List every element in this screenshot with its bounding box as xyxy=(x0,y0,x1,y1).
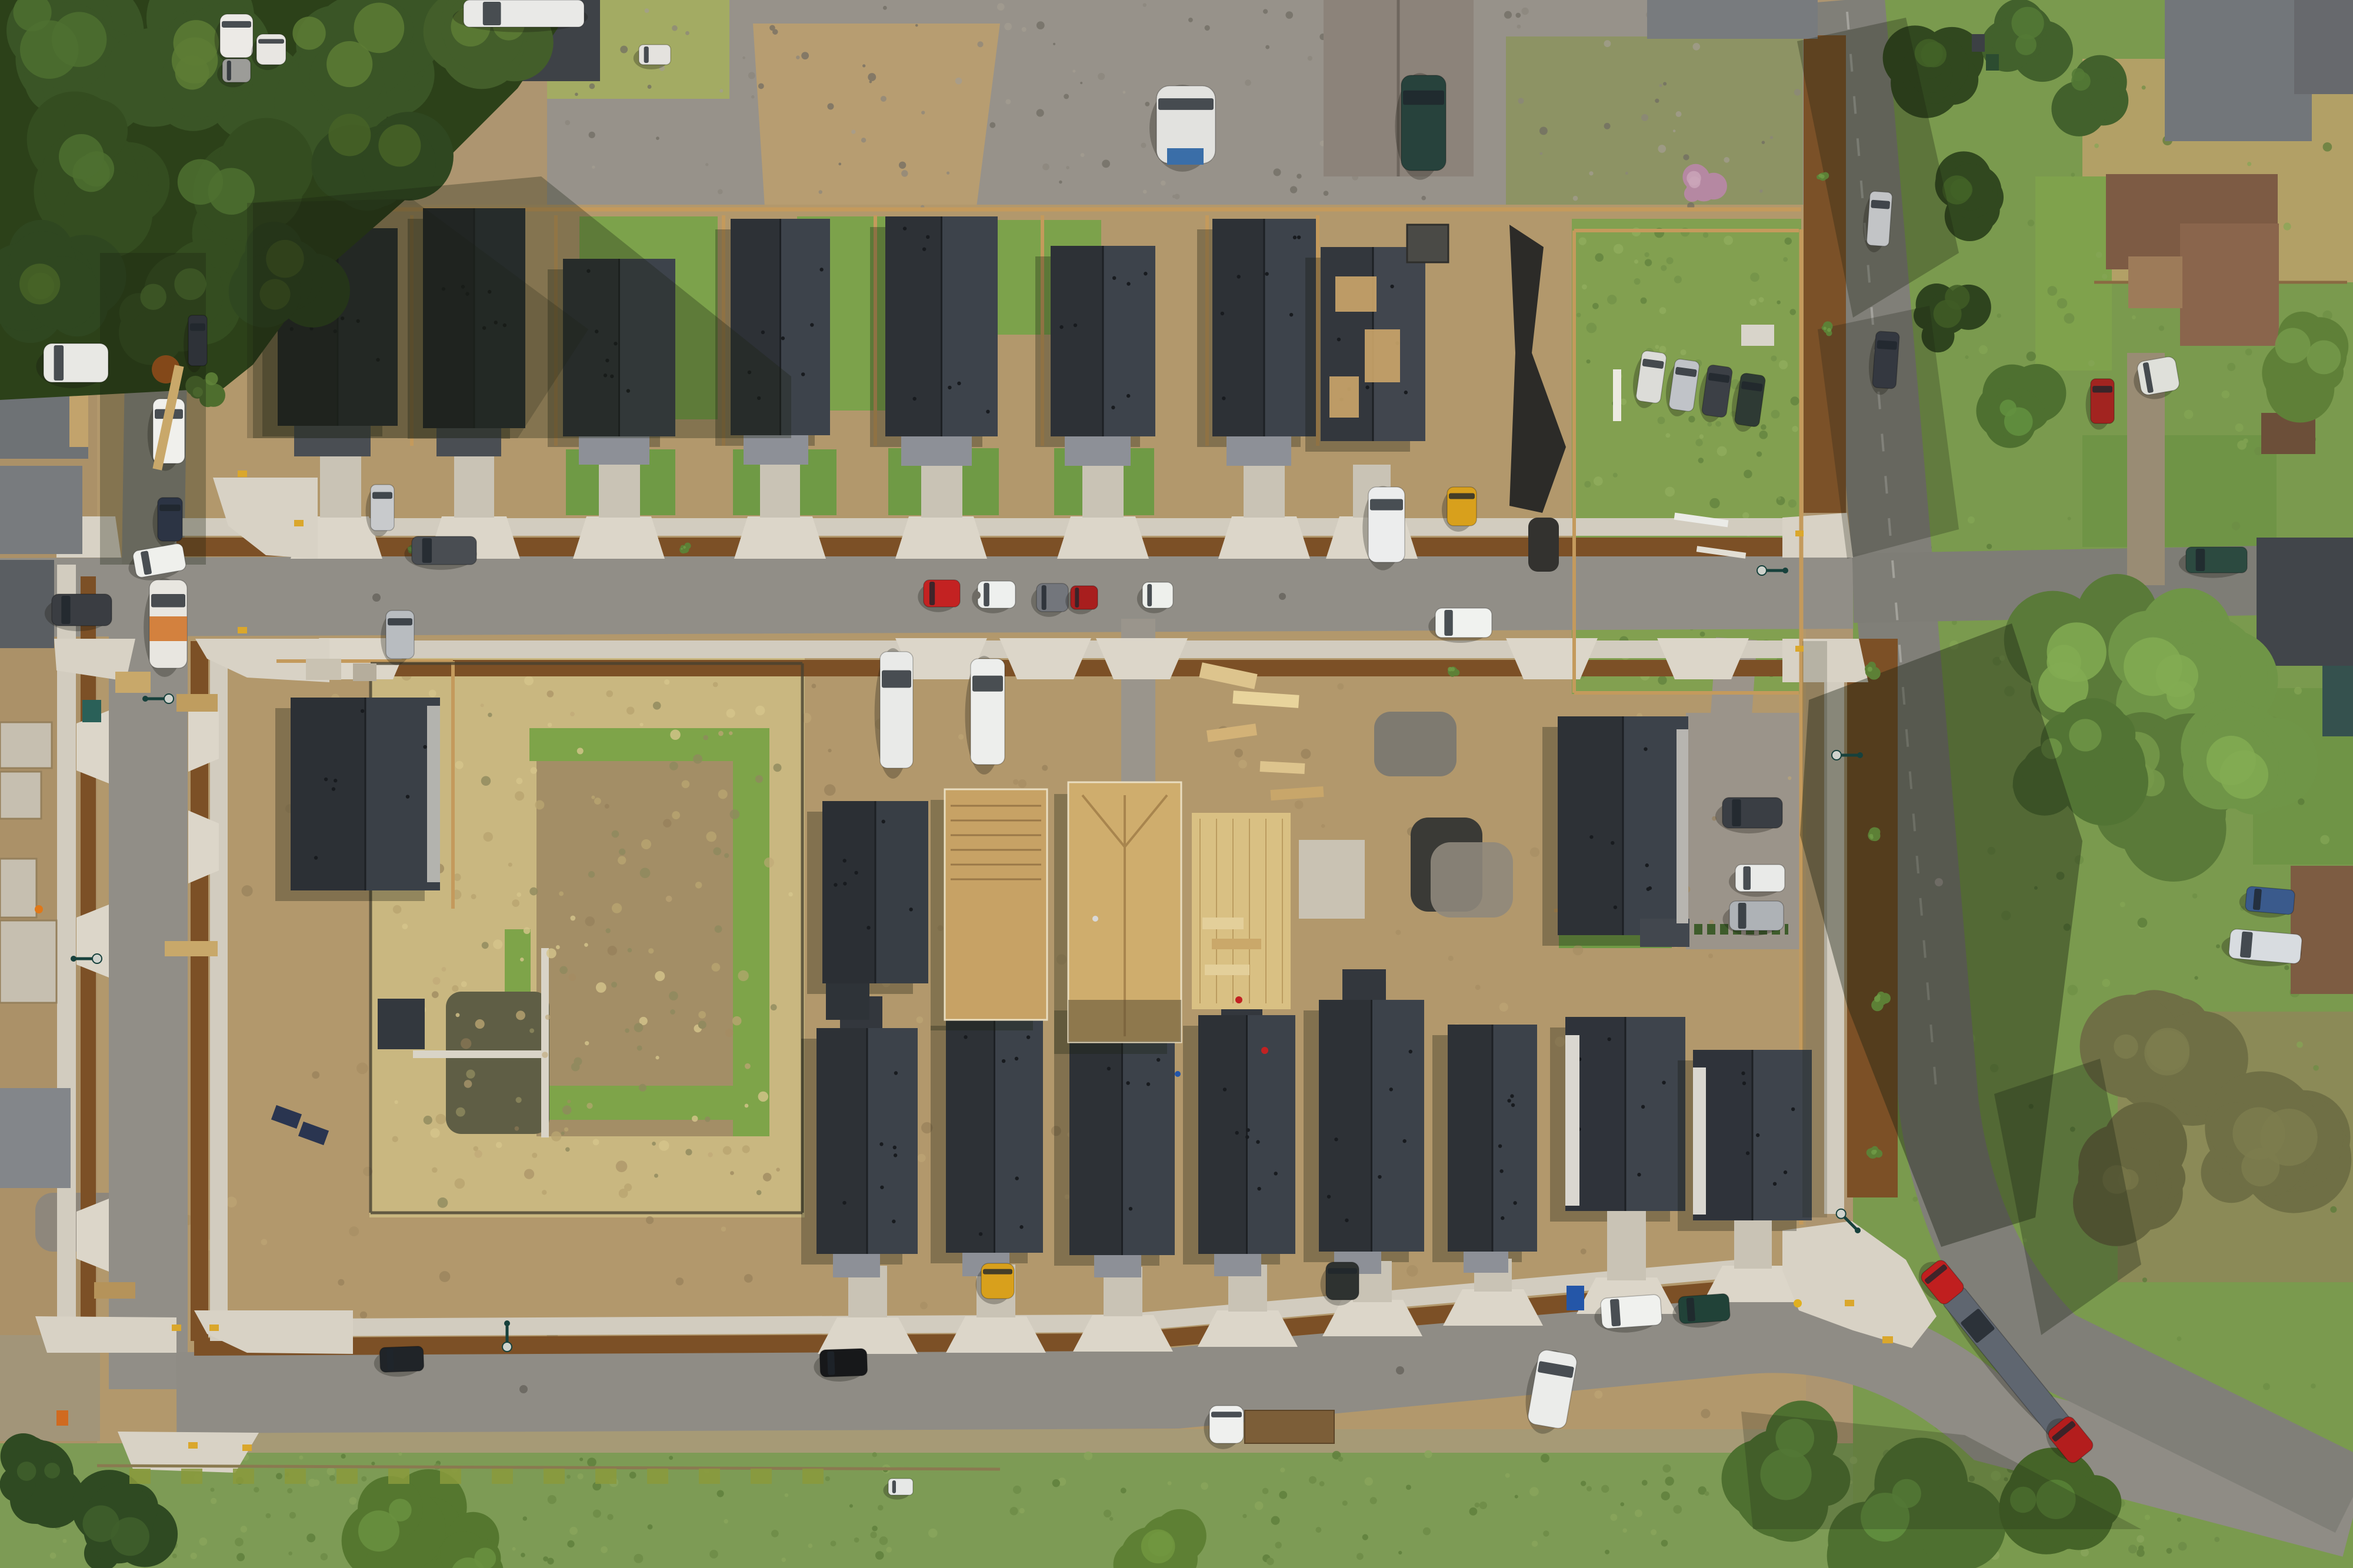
driveway xyxy=(1734,1220,1772,1269)
speckle-dot xyxy=(1271,1516,1280,1525)
speckle-dot xyxy=(1579,238,1587,245)
nb-gray-roof-house xyxy=(2165,0,2312,141)
speckle-dot xyxy=(1324,191,1329,196)
speckle-dot xyxy=(872,1452,877,1457)
speckle-dot xyxy=(2068,517,2071,521)
speckle-dot xyxy=(1987,543,1992,549)
vehicle-windshield xyxy=(1370,499,1403,510)
vehicle-windshield xyxy=(227,61,231,81)
vehicle-body xyxy=(464,0,584,27)
speckle-dot xyxy=(601,1546,608,1553)
speckle-dot xyxy=(529,888,538,896)
lamp-head xyxy=(92,954,102,963)
vehicle-windshield xyxy=(984,583,989,606)
speckle-dot xyxy=(548,723,552,727)
canopy-highlight xyxy=(2307,341,2341,375)
speckle-dot xyxy=(1605,1550,1609,1554)
canopy-highlight xyxy=(2147,1028,2189,1071)
speckle-dot xyxy=(2232,522,2241,531)
roof-west-slope xyxy=(1448,1025,1492,1252)
canopy-highlight xyxy=(2260,1109,2317,1166)
roof-bump xyxy=(1214,1254,1261,1276)
speckle-dot xyxy=(1661,1540,1668,1547)
speckle-dot xyxy=(1777,301,1781,305)
speckle-dot xyxy=(1421,196,1426,201)
speckle-dot xyxy=(718,789,728,799)
speckle-dot xyxy=(1084,1452,1092,1460)
roof-west-slope xyxy=(1319,1000,1372,1252)
speckle-dot xyxy=(1594,476,1603,486)
speckle-dot xyxy=(958,734,964,739)
lamp-pole xyxy=(71,956,76,962)
deck-lumber-stack xyxy=(1205,965,1249,975)
speckle-dot xyxy=(455,761,464,769)
nb-teal-wall xyxy=(2322,666,2353,736)
canopy-highlight xyxy=(1827,328,1831,332)
vehicle-body xyxy=(1872,331,1900,389)
vehicle-body xyxy=(222,59,251,82)
roof-vent xyxy=(1235,1131,1239,1135)
speckle-dot xyxy=(1709,920,1714,925)
vehicle-body xyxy=(1867,191,1892,246)
speckle-dot xyxy=(394,1100,398,1104)
speckle-dot xyxy=(788,892,793,897)
canopy-highlight xyxy=(683,546,686,549)
roof-bump xyxy=(1342,969,1386,1000)
speckle-dot xyxy=(516,1097,522,1103)
roof-vent xyxy=(957,382,961,385)
speckle-dot xyxy=(1749,299,1757,306)
roof-vent xyxy=(1074,323,1077,327)
speckle-dot xyxy=(430,1128,439,1137)
speckle-dot xyxy=(1965,355,1968,359)
speckle-dot xyxy=(1081,153,1085,157)
speckle-dot xyxy=(838,163,841,166)
speckle-dot xyxy=(812,683,816,688)
roof-vent xyxy=(854,871,858,875)
tactile-pad xyxy=(1795,531,1804,536)
speckle-dot xyxy=(785,1493,789,1497)
east-lot-white-car xyxy=(1729,865,1785,897)
speckle-dot xyxy=(1395,930,1401,935)
speckle-dot xyxy=(2227,363,2235,371)
vehicle-body xyxy=(1600,1295,1662,1329)
speckle-dot xyxy=(693,755,702,764)
speckle-dot xyxy=(508,863,512,867)
speckle-dot xyxy=(763,1173,772,1182)
roof-vent xyxy=(332,787,335,790)
speckle-dot xyxy=(2057,298,2068,309)
speckle-dot xyxy=(1667,257,1674,264)
speckle-dot xyxy=(639,723,643,726)
speckle-dot xyxy=(562,1105,572,1115)
tarp-pile-small xyxy=(1528,518,1559,572)
roof-vent xyxy=(1409,1050,1412,1053)
speckle-dot xyxy=(769,25,775,31)
dark-suv-street xyxy=(404,536,476,570)
vehicle-body xyxy=(1447,487,1477,526)
speckle-dot xyxy=(669,1456,673,1460)
roof-east-slope xyxy=(942,216,998,436)
vehicle-body xyxy=(1435,608,1492,638)
speckle-dot xyxy=(392,1136,398,1142)
pond-weir-horizontal xyxy=(413,1050,547,1058)
speckle-dot xyxy=(901,170,908,176)
canopy-highlight xyxy=(1824,327,1827,330)
speckle-dot xyxy=(825,1476,830,1481)
nb-dark-house xyxy=(2257,538,2353,666)
speckle-dot xyxy=(1479,1502,1487,1509)
deck-lumber-stack xyxy=(1212,939,1261,949)
speckle-dot xyxy=(172,1553,177,1558)
speckle-dot xyxy=(672,811,680,819)
roof-vent xyxy=(1662,1080,1665,1084)
roof-vent xyxy=(1742,1082,1746,1085)
speckle-dot xyxy=(2311,1383,2316,1389)
speckle-dot xyxy=(801,52,809,59)
speckle-dot xyxy=(1634,278,1641,285)
roof-vent xyxy=(843,882,846,885)
speckle-dot xyxy=(709,1550,718,1559)
speckle-dot xyxy=(1004,23,1012,31)
speckle-dot xyxy=(729,731,732,735)
speckle-dot xyxy=(1595,253,1604,262)
white-box-truck xyxy=(1362,486,1405,570)
canopy-highlight xyxy=(178,159,223,205)
speckle-dot xyxy=(524,676,534,685)
speckle-dot xyxy=(1052,1479,1060,1487)
speckle-dot xyxy=(872,1526,878,1532)
speckle-dot xyxy=(1274,168,1281,176)
speckle-dot xyxy=(883,6,887,10)
vehicle-windshield xyxy=(1449,493,1475,499)
roof-vent xyxy=(314,856,318,859)
speckle-dot xyxy=(308,1479,316,1487)
roof-vent xyxy=(1611,841,1614,845)
vehicle-body xyxy=(220,14,253,58)
speckle-dot xyxy=(456,1107,465,1117)
vehicle-body xyxy=(1036,583,1068,612)
speckle-dot xyxy=(515,791,524,800)
speckle-dot xyxy=(1700,632,1705,637)
vehicle-windshield xyxy=(483,2,501,25)
speckle-dot xyxy=(241,1526,247,1532)
west-model-home xyxy=(275,698,440,901)
roof-vent xyxy=(964,1035,967,1039)
speckle-dot xyxy=(1098,73,1105,80)
speckle-dot xyxy=(1715,421,1721,427)
silver-suv xyxy=(381,610,414,665)
speckle-dot xyxy=(516,892,521,897)
vehicle-body xyxy=(1368,487,1405,562)
speckle-dot xyxy=(532,1153,537,1158)
speckle-dot xyxy=(1701,1409,1710,1418)
pallet xyxy=(165,941,218,956)
roof-vent xyxy=(1499,1169,1503,1173)
speckle-dot xyxy=(1267,1557,1274,1565)
canopy-highlight xyxy=(52,12,107,67)
site-box-truck xyxy=(875,648,913,779)
speckle-dot xyxy=(210,1487,214,1492)
speckle-dot xyxy=(726,709,735,718)
speckle-dot xyxy=(306,1533,315,1542)
speckle-dot xyxy=(438,1197,448,1208)
speckle-dot xyxy=(745,1063,751,1069)
speckle-dot xyxy=(2294,687,2302,695)
speckle-dot xyxy=(1121,1487,1126,1493)
speckle-dot xyxy=(703,735,708,740)
speckle-dot xyxy=(570,916,575,921)
speckle-dot xyxy=(50,1553,56,1559)
speckle-dot xyxy=(520,958,524,962)
canopy-highlight xyxy=(1869,834,1874,838)
speckle-dot xyxy=(612,830,619,838)
vehicle-windshield xyxy=(1042,585,1046,610)
vehicle-windshield xyxy=(54,345,64,381)
vehicle-windshield xyxy=(159,505,181,511)
speckle-dot xyxy=(1234,749,1243,758)
canopy-highlight xyxy=(175,55,209,89)
tactile-pad xyxy=(1845,1300,1854,1306)
framed-house-A xyxy=(945,789,1047,1020)
roof-vent xyxy=(1327,1195,1331,1198)
canopy-highlight xyxy=(205,372,218,385)
vehicle-windshield xyxy=(1075,588,1079,608)
speckle-dot xyxy=(831,1540,836,1546)
canopy-highlight xyxy=(292,16,325,49)
yellow-skid-steer xyxy=(1442,487,1477,532)
roof-vent xyxy=(801,372,805,376)
drive-apron xyxy=(1218,516,1310,559)
speckle-dot xyxy=(2047,286,2057,296)
speckle-dot xyxy=(808,1543,813,1548)
speckle-dot xyxy=(585,1041,589,1045)
speckle-dot xyxy=(1013,1486,1021,1494)
plywood-patch xyxy=(1365,329,1400,382)
canopy-lobe xyxy=(2088,78,2119,110)
roof-vent xyxy=(1126,1081,1129,1085)
canopy-highlight xyxy=(1451,667,1455,671)
speckle-dot xyxy=(625,1028,629,1033)
speckle-dot xyxy=(559,892,564,896)
speckle-dot xyxy=(1072,69,1075,72)
speckle-dot xyxy=(464,1080,472,1088)
roof-vent xyxy=(880,1186,884,1189)
speckle-dot xyxy=(1604,40,1611,47)
worker-red xyxy=(1235,996,1242,1003)
speckle-dot xyxy=(666,896,672,902)
canopy-highlight xyxy=(59,134,104,179)
speckle-dot xyxy=(569,1527,578,1535)
speckle-dot xyxy=(1172,195,1176,198)
speckle-dot xyxy=(605,804,609,809)
speckle-dot xyxy=(1705,1492,1709,1496)
speckle-dot xyxy=(2096,252,2102,258)
driveway xyxy=(1607,1211,1646,1280)
speckle-dot xyxy=(1587,1486,1592,1492)
speckle-dot xyxy=(774,763,782,772)
dumpster xyxy=(1407,225,1448,262)
dark-van xyxy=(45,594,112,631)
roof-vent xyxy=(1247,1128,1250,1132)
speckle-dot xyxy=(730,809,740,819)
trash-bin xyxy=(1986,54,1999,71)
speckle-dot xyxy=(2216,945,2220,949)
speckle-dot xyxy=(1703,232,1708,238)
speckle-dot xyxy=(2145,1514,2150,1520)
roof-vent xyxy=(1015,1057,1018,1060)
vehicle-body xyxy=(639,45,671,65)
speckle-dot xyxy=(1301,749,1311,759)
trash-bin xyxy=(1972,34,1985,52)
canopy-highlight xyxy=(2275,328,2310,363)
roof-east-slope xyxy=(1492,1025,1537,1252)
speckle-dot xyxy=(529,1028,534,1033)
speckle-dot xyxy=(312,1071,319,1079)
flatbed-truck xyxy=(453,0,588,32)
speckle-dot xyxy=(424,1116,432,1125)
vehicle-windshield xyxy=(1738,903,1747,929)
speckle-dot xyxy=(620,46,628,54)
roof-vent xyxy=(1265,272,1268,276)
roof-east-slope xyxy=(1103,246,1155,436)
speckle-dot xyxy=(851,130,855,134)
vehicle-body xyxy=(1678,1293,1731,1324)
speckle-dot xyxy=(1109,1517,1114,1521)
speckle-dot xyxy=(1724,157,1729,163)
speckle-dot xyxy=(612,903,622,913)
speckle-dot xyxy=(1018,779,1026,788)
pvc-pipe-bundle xyxy=(1613,369,1621,421)
speckle-dot xyxy=(1791,396,1799,405)
speckle-dot xyxy=(1581,1249,1587,1255)
speckle-dot xyxy=(875,1551,884,1560)
speckle-dot xyxy=(456,1013,460,1017)
speckle-dot xyxy=(191,1553,197,1559)
tactile-pad xyxy=(172,1325,181,1331)
speckle-dot xyxy=(1761,424,1767,430)
roof-vent xyxy=(1637,1173,1641,1176)
roof-bump xyxy=(579,436,649,465)
speckle-dot xyxy=(1010,1507,1018,1515)
speckle-dot xyxy=(920,1302,928,1309)
speckle-dot xyxy=(732,1016,742,1026)
speckle-dot xyxy=(1161,181,1166,186)
speckle-dot xyxy=(565,120,570,125)
vehicle-windshield xyxy=(1444,610,1452,636)
speckle-dot xyxy=(2313,1065,2319,1071)
vehicle-windshield xyxy=(892,1480,896,1493)
speckle-dot xyxy=(1620,1502,1624,1506)
speckle-dot xyxy=(481,703,484,707)
speckle-dot xyxy=(1005,99,1011,104)
speckle-dot xyxy=(2214,1537,2219,1542)
speckle-dot xyxy=(628,948,632,953)
roof-west-slope xyxy=(816,1028,867,1254)
speckle-dot xyxy=(745,1104,749,1108)
driveway xyxy=(1082,466,1124,518)
teal-pickup xyxy=(1395,73,1446,179)
speckle-dot xyxy=(685,1149,692,1155)
speckle-dot xyxy=(570,712,575,716)
vehicle-windshield xyxy=(386,1349,394,1370)
manhole xyxy=(1396,1366,1404,1374)
speckle-dot xyxy=(656,136,659,140)
speckle-dot xyxy=(593,1510,601,1518)
speckle-dot xyxy=(861,138,866,142)
speckle-dot xyxy=(1661,265,1667,271)
speckle-dot xyxy=(1610,1514,1617,1521)
concrete-pad xyxy=(1299,840,1365,919)
dark-machine xyxy=(1321,1262,1359,1306)
top-right-weeds xyxy=(1506,36,1803,213)
speckle-dot xyxy=(461,1038,471,1049)
corner-fan xyxy=(35,1316,176,1353)
speckle-dot xyxy=(653,702,661,710)
tactile-pad xyxy=(294,520,304,526)
speckle-dot xyxy=(2064,313,2074,323)
speckle-dot xyxy=(578,1473,584,1479)
lamp-pole xyxy=(1782,568,1788,573)
speckle-dot xyxy=(730,1171,734,1175)
roof-vent xyxy=(1156,1058,1160,1062)
speckle-dot xyxy=(1059,181,1062,184)
speckle-dot xyxy=(1104,1510,1111,1517)
bottom-house-4 xyxy=(1183,983,1295,1312)
speckle-dot xyxy=(1362,1534,1368,1540)
speckle-dot xyxy=(2330,1206,2337,1213)
speckle-dot xyxy=(1582,284,1587,289)
white-suv-driving xyxy=(1428,608,1492,643)
vehicle-windshield xyxy=(1328,1268,1357,1274)
roof-vent xyxy=(1773,1182,1777,1186)
speckle-dot xyxy=(2177,1336,2181,1341)
speckle-dot xyxy=(592,165,595,168)
canopy-highlight xyxy=(328,114,371,156)
speckle-dot xyxy=(1475,985,1481,990)
speckle-dot xyxy=(1581,1481,1586,1486)
speckle-dot xyxy=(1641,298,1647,304)
speckle-dot xyxy=(1642,1480,1648,1486)
basin-grass-south xyxy=(516,1086,744,1120)
manhole xyxy=(372,593,381,602)
roof-vent xyxy=(1498,1144,1502,1147)
east-lot-silver-suv xyxy=(1722,901,1784,936)
speckle-dot xyxy=(2177,1517,2181,1522)
box-truck-blue-cab xyxy=(1167,148,1204,165)
speckle-dot xyxy=(616,1160,628,1172)
roof-vent xyxy=(893,1146,896,1149)
roof-vent xyxy=(1112,276,1116,279)
speckle-dot xyxy=(685,31,689,35)
speckle-dot xyxy=(1594,1390,1602,1399)
speckle-dot xyxy=(1912,1197,1918,1202)
speckle-dot xyxy=(886,1547,892,1553)
basin-grass-east xyxy=(733,728,769,1136)
roof-bump xyxy=(1227,436,1291,466)
speckle-dot xyxy=(393,905,402,914)
vehicle-windshield xyxy=(1211,1412,1242,1417)
speckle-dot xyxy=(2137,1535,2144,1543)
speckle-dot xyxy=(1188,18,1193,22)
bottom-house-5 xyxy=(1304,969,1424,1302)
speckle-dot xyxy=(62,1539,66,1543)
speckle-dot xyxy=(566,1475,571,1479)
speckle-dot xyxy=(928,1529,938,1538)
vehicle-body xyxy=(188,315,207,366)
speckle-dot xyxy=(261,1239,268,1245)
manhole xyxy=(519,1385,528,1393)
